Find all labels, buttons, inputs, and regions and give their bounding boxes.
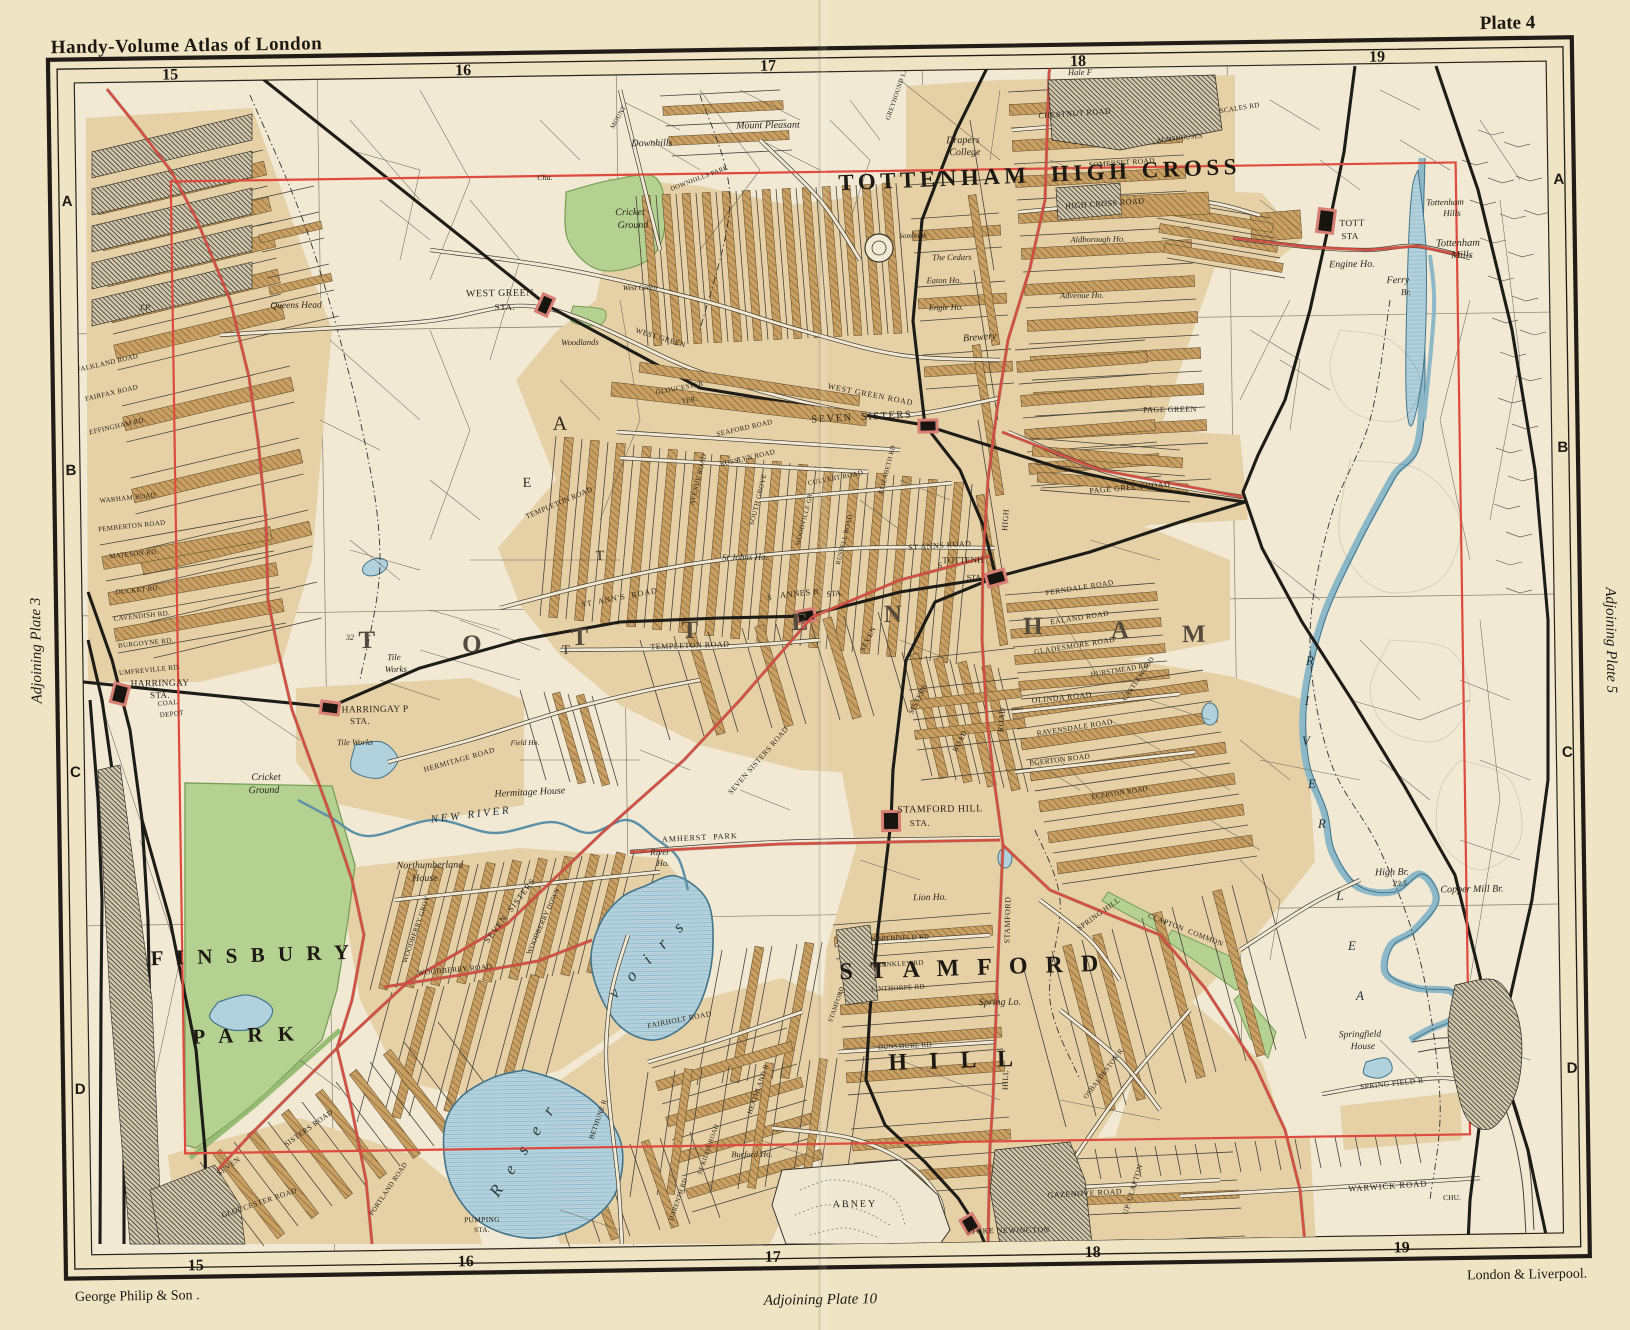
svg-text:A: A xyxy=(61,193,72,210)
svg-text:A: A xyxy=(1553,171,1564,188)
svg-text:B: B xyxy=(1557,439,1568,456)
svg-text:18: 18 xyxy=(1070,53,1086,70)
svg-text:16: 16 xyxy=(455,62,471,79)
svg-text:16: 16 xyxy=(458,1253,474,1270)
svg-text:17: 17 xyxy=(765,1249,781,1266)
svg-text:18: 18 xyxy=(1085,1244,1101,1261)
svg-text:Adjoining Plate 3: Adjoining Plate 3 xyxy=(28,598,46,705)
svg-text:C: C xyxy=(70,764,81,781)
svg-text:Plate 4: Plate 4 xyxy=(1480,12,1536,34)
svg-text:19: 19 xyxy=(1369,48,1385,65)
svg-text:19: 19 xyxy=(1394,1239,1410,1256)
svg-text:15: 15 xyxy=(188,1257,204,1274)
svg-text:15: 15 xyxy=(162,66,178,83)
svg-text:London & Liverpool.: London & Liverpool. xyxy=(1467,1267,1587,1284)
svg-text:Handy-Volume Atlas of London: Handy-Volume Atlas of London xyxy=(51,33,323,58)
svg-text:B: B xyxy=(65,462,76,479)
svg-text:17: 17 xyxy=(760,58,776,75)
svg-text:D: D xyxy=(1567,1060,1578,1077)
svg-text:Adjoining Plate 5: Adjoining Plate 5 xyxy=(1602,586,1620,694)
svg-text:D: D xyxy=(75,1081,86,1098)
svg-text:George Philip & Son .: George Philip & Son . xyxy=(75,1288,200,1305)
svg-text:C: C xyxy=(1562,744,1573,761)
